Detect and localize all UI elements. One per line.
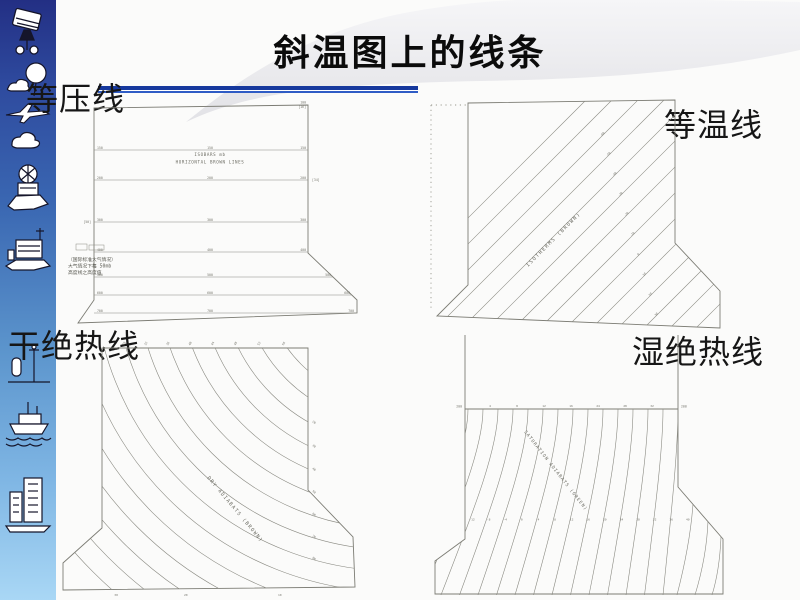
isobars-diagram: 1501501502002002003003003004004004005005… bbox=[60, 95, 360, 325]
isotherm-value: 30 bbox=[654, 311, 660, 317]
isotherm-line bbox=[615, 95, 725, 335]
dry-adiabat-top-value: 48 bbox=[233, 341, 238, 346]
dry-adiabat-curve bbox=[94, 330, 365, 571]
isobar-mid-value: 400 bbox=[207, 248, 213, 252]
isotherm-value: -20 bbox=[623, 211, 630, 218]
dry-adiabat-bottom-value: 10 bbox=[278, 593, 282, 597]
saturation-adiabats-inner-title: SATURATION ADIABATS (GREEN) bbox=[522, 430, 588, 513]
dry-adiabat-top-value: 32 bbox=[143, 341, 148, 346]
isobar-right-value: 200 bbox=[300, 176, 306, 180]
dry-adiabats-diagram: 565248444036322820304050607080102030DRY … bbox=[55, 330, 365, 600]
isotherm-line bbox=[425, 95, 599, 335]
saturation-inner-title-group: SATURATION ADIABATS (GREEN) bbox=[522, 430, 588, 513]
satellite-icon bbox=[4, 6, 52, 60]
isobar-left-value: 200 bbox=[97, 176, 103, 180]
dry-adiabat-bottom-value: 20 bbox=[184, 593, 188, 597]
isotherm-line bbox=[563, 95, 725, 335]
dry-adiabat-curve bbox=[55, 330, 365, 600]
saturation-mid-value: 36 bbox=[669, 518, 673, 522]
saturation-mid-value: 28 bbox=[636, 518, 640, 522]
saturation-adiabat-curve bbox=[695, 521, 708, 595]
isotherm-line bbox=[641, 95, 725, 335]
dry-adiabat-curve bbox=[136, 330, 365, 529]
saturation-top-value: 24 bbox=[596, 404, 600, 408]
isobar-right-value: 500 bbox=[325, 273, 331, 277]
dry-adiabat-curve bbox=[55, 330, 365, 600]
dry-inner-title-group: DRY ADIABATS (BROWN) bbox=[205, 475, 264, 543]
isobars-annotation-line: 大气情况下每 50mb bbox=[68, 263, 111, 270]
dry-adiabat-curve bbox=[262, 330, 365, 403]
isotherm-line bbox=[667, 95, 725, 335]
saturation-mid-value: -8 bbox=[487, 518, 491, 522]
divider-light-stripe bbox=[98, 91, 418, 93]
isobar-mid-value: 300 bbox=[207, 218, 213, 222]
isobar-left-value: 600 bbox=[97, 291, 103, 295]
isotherms-diagram: -60-50-40-30-20-100102030ISOTHERMS (BROW… bbox=[425, 95, 725, 335]
saturation-adiabat-curve bbox=[460, 409, 514, 595]
saturation-adiabat-curve bbox=[432, 409, 483, 595]
isotherm-value: -60 bbox=[599, 131, 606, 138]
isobar-top-value: 100 bbox=[300, 101, 306, 105]
dry-adiabat-curve bbox=[199, 330, 365, 466]
isobar-mid-value: 150 bbox=[207, 146, 213, 150]
isobar-right-value: 400 bbox=[300, 248, 306, 252]
isobar-left-value: 300 bbox=[97, 218, 103, 222]
saturation-mid-value: 32 bbox=[653, 518, 657, 522]
isobars-annotation-line: 高度线之高度值 bbox=[68, 269, 102, 276]
dry-adiabat-curve bbox=[55, 330, 365, 600]
saturation-top-value: 12 bbox=[542, 404, 546, 408]
isotherm-line bbox=[485, 95, 725, 335]
saturation-adiabat-labels-group: 200200481216242832-12-8-4048121620242832… bbox=[456, 404, 690, 522]
isobars-inner-title: ISOBARS mb bbox=[194, 152, 225, 157]
isobar-right-value: 700 bbox=[348, 309, 354, 313]
dry-adiabat-top-value: 56 bbox=[281, 341, 286, 346]
isobars-outline bbox=[78, 105, 357, 323]
saturation-mid-value: 20 bbox=[603, 518, 607, 522]
isobar-bracket-label: [50] bbox=[83, 220, 91, 224]
isobar-bracket-label: [16] bbox=[298, 105, 306, 109]
annotation-box bbox=[76, 244, 87, 250]
isobars-inner-subtitle: HORIZONTAL BROWN LINES bbox=[176, 160, 245, 165]
saturation-top-value: 4 bbox=[489, 404, 491, 408]
dry-adiabat-curve bbox=[55, 330, 365, 600]
saturation-adiabat-curve bbox=[534, 409, 574, 595]
dry-adiabat-top-value: 36 bbox=[165, 341, 170, 346]
dry-adiabat-right-value: 30 bbox=[311, 443, 316, 449]
isobar-left-value: 700 bbox=[97, 309, 103, 313]
isotherm-value: -10 bbox=[629, 231, 636, 238]
saturation-mid-value: 8 bbox=[554, 518, 556, 522]
isobar-mid-value: 600 bbox=[207, 291, 213, 295]
ship-icon bbox=[4, 398, 54, 450]
slide-title: 斜温图上的线条 bbox=[180, 24, 640, 76]
dry-adiabat-curve bbox=[220, 330, 365, 445]
isotherm-line bbox=[425, 95, 651, 335]
saturation-adiabats-diagram: 200200481216242832-12-8-4048121620242832… bbox=[432, 332, 732, 597]
dry-adiabat-curve bbox=[73, 330, 365, 592]
saturation-mid-value: 12 bbox=[570, 518, 574, 522]
dry-adiabat-curve bbox=[178, 330, 365, 487]
dry-adiabat-top-value: 52 bbox=[256, 341, 261, 346]
isobar-right-value: 150 bbox=[300, 146, 306, 150]
isotherms-inner-title-group: ISOTHERMS (BROWN) bbox=[525, 211, 582, 268]
dry-adiabat-right-value: 40 bbox=[311, 466, 316, 472]
slide: 斜温图上的线条 等压线 等温线 干绝热线 湿绝热线 15015015020020… bbox=[0, 0, 800, 600]
saturation-adiabat-curve bbox=[608, 409, 634, 595]
dry-adiabat-curves-group bbox=[55, 330, 365, 600]
dry-adiabat-right-value: 60 bbox=[311, 512, 316, 518]
saturation-adiabat-curve bbox=[478, 409, 528, 595]
saturation-adiabat-curve bbox=[645, 409, 664, 595]
dry-adiabat-curve bbox=[157, 330, 365, 508]
isotherm-value: 10 bbox=[642, 271, 648, 277]
saturation-mid-value: -12 bbox=[469, 518, 475, 522]
dry-adiabat-top-value: 28 bbox=[121, 341, 126, 346]
isobar-right-value: 300 bbox=[300, 218, 306, 222]
saturation-top-value: 32 bbox=[650, 404, 654, 408]
saturation-adiabat-curve bbox=[497, 409, 544, 595]
isotherm-line bbox=[433, 95, 703, 335]
isobar-bracket-label: [34] bbox=[312, 178, 320, 182]
radar-station-icon bbox=[4, 162, 54, 220]
dry-adiabat-top-value: 40 bbox=[188, 341, 193, 346]
isotherms-inner-title: ISOTHERMS (BROWN) bbox=[525, 211, 582, 268]
isotherm-line bbox=[459, 95, 725, 335]
dry-adiabat-right-value: 20 bbox=[311, 420, 316, 426]
saturation-mid-value: 40 bbox=[686, 518, 690, 522]
saturation-mid-value: 16 bbox=[586, 518, 590, 522]
dry-adiabat-curve bbox=[283, 330, 365, 382]
dry-adiabat-curve bbox=[55, 330, 365, 600]
saturation-mid-value: -4 bbox=[503, 518, 507, 522]
isotherm-value: -50 bbox=[605, 151, 612, 158]
dry-adiabats-inner-title: DRY ADIABATS (BROWN) bbox=[205, 475, 264, 543]
isobar-lines-group: 1501501502002002003003003004004004005005… bbox=[68, 101, 356, 314]
isotherm-line bbox=[589, 95, 725, 335]
saturation-top-value: 28 bbox=[623, 404, 627, 408]
weather-station-icon bbox=[4, 226, 54, 278]
isobar-right-value: 600 bbox=[344, 291, 350, 295]
isobar-mid-value: 500 bbox=[207, 273, 213, 277]
saturation-left-200: 200 bbox=[456, 405, 462, 409]
cloud-icon bbox=[4, 126, 54, 152]
title-divider-line bbox=[98, 86, 418, 93]
saturation-adiabat-curve bbox=[515, 409, 558, 595]
saturation-adiabat-curve bbox=[432, 409, 468, 595]
isotherm-line bbox=[425, 95, 677, 335]
saturation-mid-value: 24 bbox=[620, 518, 624, 522]
isobar-mid-value: 200 bbox=[207, 176, 213, 180]
saturation-mid-value: 4 bbox=[537, 518, 539, 522]
saturation-adiabat-curve bbox=[571, 409, 604, 595]
saturation-mid-value: 0 bbox=[521, 518, 523, 522]
saturation-top-value: 8 bbox=[516, 404, 518, 408]
saturation-adiabat-curve bbox=[712, 537, 721, 595]
city-buildings-icon bbox=[4, 474, 54, 536]
isotherm-value: -40 bbox=[611, 171, 618, 178]
isobar-left-value: 150 bbox=[97, 146, 103, 150]
isobar-mid-value: 700 bbox=[207, 309, 213, 313]
dry-adiabat-bottom-value: 30 bbox=[114, 593, 118, 597]
dry-adiabat-top-value: 44 bbox=[210, 341, 215, 346]
saturation-adiabat-curve bbox=[663, 409, 678, 595]
saturation-adiabat-curve bbox=[626, 409, 648, 595]
saturation-top-value: 16 bbox=[569, 404, 573, 408]
isotherm-value: -30 bbox=[617, 191, 624, 198]
isobars-annotation-line: （国际标准大气情况） bbox=[68, 256, 116, 263]
isotherm-value: 20 bbox=[648, 291, 654, 297]
isotherm-line bbox=[537, 95, 725, 335]
saturation-adiabat-curve bbox=[589, 409, 618, 595]
saturation-right-200: 200 bbox=[681, 405, 687, 409]
